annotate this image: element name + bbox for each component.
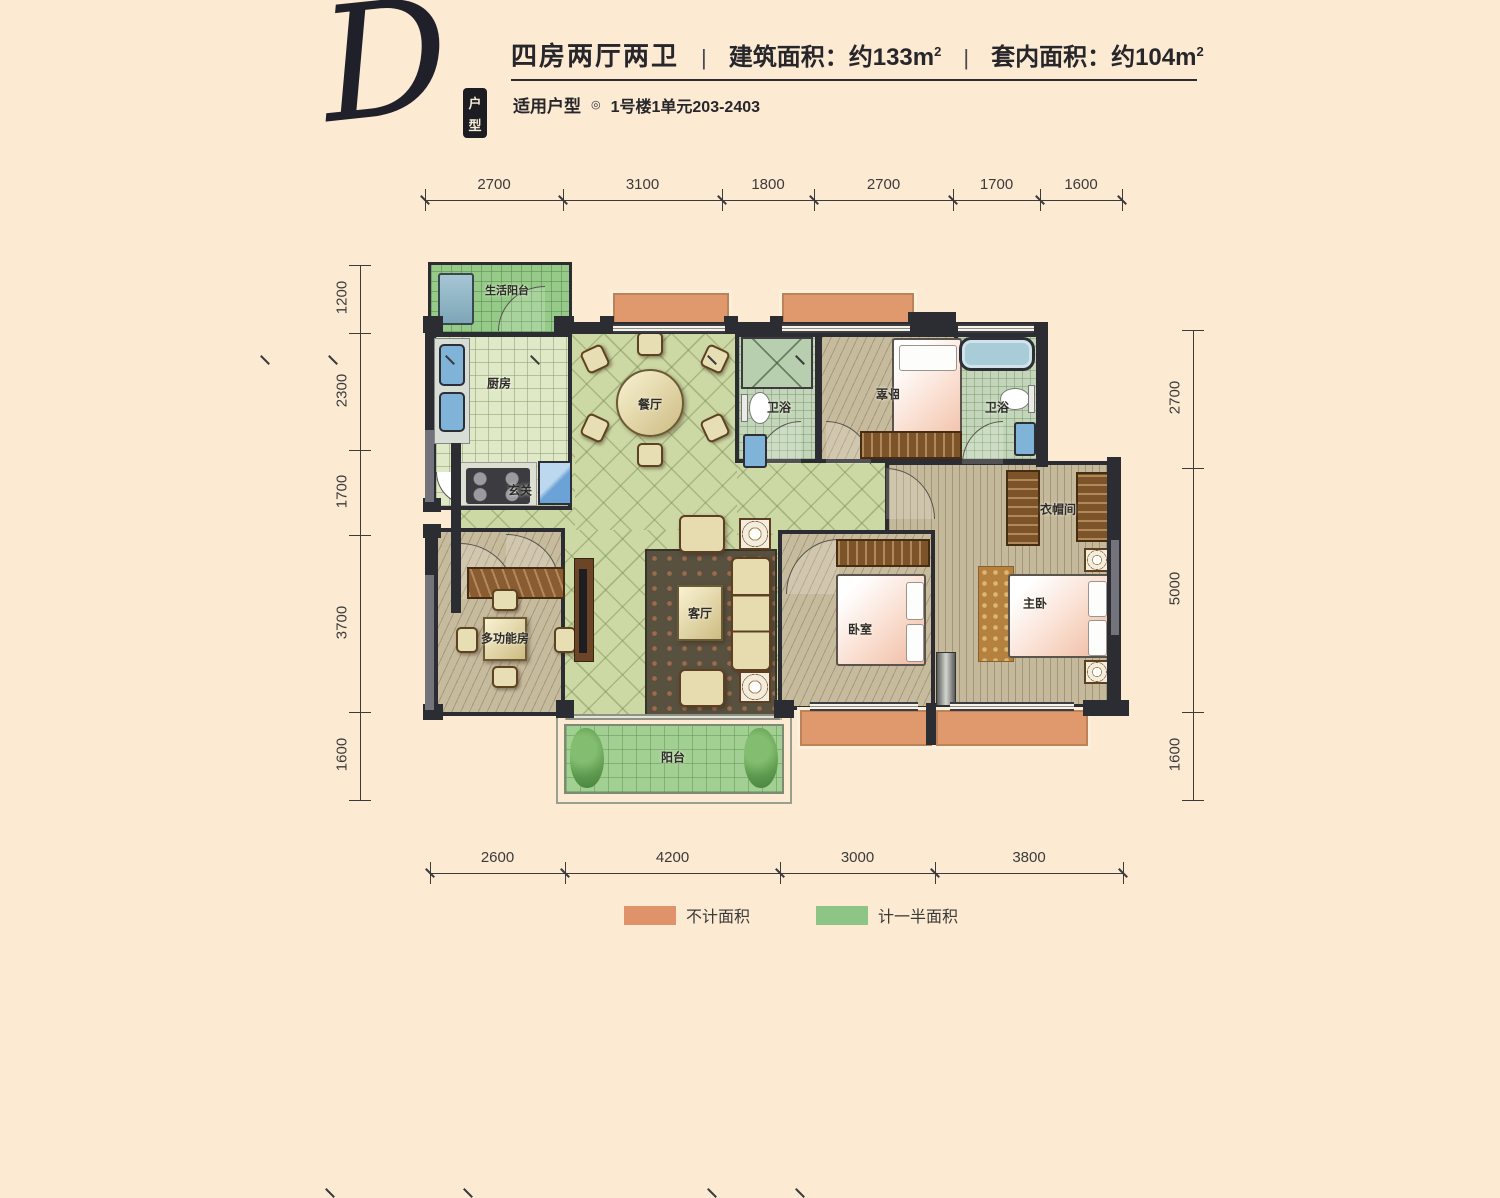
dimension-label: 4200 bbox=[633, 849, 713, 866]
room-label-bedroom-bottom: 卧室 bbox=[848, 621, 872, 638]
building-area: 建筑面积：约133m2 bbox=[729, 37, 942, 72]
dimension-label: 1600 bbox=[334, 715, 351, 795]
window bbox=[950, 702, 1074, 711]
tv-cabinet bbox=[574, 558, 594, 662]
plant bbox=[570, 728, 604, 788]
dimension-label: 2700 bbox=[844, 176, 924, 193]
window bbox=[958, 324, 1034, 333]
dressing-table bbox=[936, 652, 956, 706]
dimension-tick bbox=[349, 333, 371, 334]
wall bbox=[908, 312, 956, 334]
room-label-balcony: 阳台 bbox=[661, 749, 685, 766]
dimension-label: 2700 bbox=[1167, 358, 1184, 438]
room-label-service-balcony: 生活阳台 bbox=[485, 282, 529, 298]
dimension-label: 1200 bbox=[334, 258, 351, 338]
room-label-bath1: 卫浴 bbox=[767, 399, 791, 416]
kitchen-sink bbox=[439, 392, 465, 432]
dimension-label: 5000 bbox=[1167, 549, 1184, 629]
plant bbox=[744, 728, 778, 788]
room-label-hall: 玄关 bbox=[508, 482, 532, 499]
dimension-tick bbox=[349, 450, 371, 451]
window bbox=[1111, 540, 1119, 635]
tv bbox=[579, 569, 587, 653]
window bbox=[613, 324, 725, 333]
dimension-label: 1700 bbox=[334, 451, 351, 531]
room-label-kitchen: 厨房 bbox=[487, 375, 511, 392]
dimension-label: 1700 bbox=[957, 176, 1037, 193]
bay-window-bottom-2 bbox=[936, 710, 1088, 746]
legend: 不计面积 计一半面积 bbox=[624, 903, 1024, 927]
dimension-line bbox=[360, 265, 361, 800]
wall bbox=[600, 316, 614, 334]
window bbox=[425, 575, 434, 710]
subtitle-value: 1号楼1单元203-2403 bbox=[611, 93, 760, 117]
dimension-tick bbox=[1182, 330, 1204, 331]
wall bbox=[1036, 322, 1048, 467]
dimension-tick bbox=[349, 712, 371, 713]
header-divider bbox=[511, 79, 1197, 81]
dimension-tick-slash bbox=[795, 1188, 805, 1198]
plan-type-letter: D bbox=[314, 0, 457, 146]
chair bbox=[492, 666, 518, 688]
wall bbox=[724, 316, 738, 334]
dimension-label: 3700 bbox=[334, 582, 351, 662]
dining-chair bbox=[637, 332, 663, 356]
master-bed bbox=[1008, 574, 1110, 658]
wall bbox=[926, 703, 936, 745]
bullet-icon: ◎ bbox=[591, 98, 601, 111]
chair bbox=[456, 627, 478, 653]
dimension-tick-slash bbox=[463, 1188, 473, 1198]
room-label-closet: 衣帽间 bbox=[1040, 501, 1076, 518]
room-label-bath2: 卫浴 bbox=[985, 399, 1009, 416]
dimension-line bbox=[1193, 330, 1194, 800]
wardrobe bbox=[860, 431, 962, 459]
side-table bbox=[739, 671, 771, 703]
inner-area: 套内面积：约104m2 bbox=[991, 37, 1204, 72]
dimension-label: 2700 bbox=[454, 176, 534, 193]
washing-machine bbox=[438, 273, 474, 325]
title-separator: | bbox=[963, 45, 969, 71]
armchair bbox=[679, 669, 725, 707]
kitchen-sink bbox=[439, 344, 465, 386]
wall bbox=[554, 316, 574, 333]
inner-area-sup: 2 bbox=[1196, 44, 1203, 59]
bay-window-bottom-1 bbox=[800, 710, 932, 746]
room-label-master: 主卧 bbox=[1023, 595, 1047, 612]
dimension-label: 2300 bbox=[334, 350, 351, 430]
bathroom-sink bbox=[1014, 422, 1036, 456]
legend-label-half-area: 计一半面积 bbox=[878, 903, 958, 927]
wall bbox=[556, 700, 574, 718]
building-area-sup: 2 bbox=[934, 44, 941, 59]
toilet-tank bbox=[1028, 385, 1035, 413]
huxing-seal: 户型 bbox=[463, 88, 487, 138]
window bbox=[425, 430, 434, 502]
armchair bbox=[679, 515, 725, 553]
dimension-label: 1600 bbox=[1041, 176, 1121, 193]
dimension-line bbox=[430, 873, 1123, 874]
page-title: 四房两厅两卫 bbox=[511, 36, 679, 73]
dimension-tick-slash bbox=[707, 1188, 717, 1198]
sofa bbox=[731, 557, 771, 671]
wardrobe bbox=[836, 539, 930, 567]
room-label-dining: 餐厅 bbox=[638, 396, 662, 413]
window bbox=[782, 324, 910, 333]
bathroom-sink bbox=[743, 434, 767, 468]
dimension-line bbox=[425, 200, 1122, 201]
dimension-tick-slash bbox=[325, 1188, 335, 1198]
side-table bbox=[739, 518, 771, 550]
dimension-label: 2600 bbox=[458, 849, 538, 866]
chair bbox=[554, 627, 576, 653]
balcony-sliding-door bbox=[566, 714, 780, 720]
dining-chair bbox=[637, 443, 663, 467]
legend-label-no-area: 不计面积 bbox=[686, 903, 750, 927]
chair bbox=[492, 589, 518, 611]
legend-swatch-orange bbox=[624, 906, 676, 925]
dimension-tick bbox=[1182, 468, 1204, 469]
subtitle-row: 适用户型 ◎ 1号楼1单元203-2403 bbox=[513, 92, 760, 117]
closet-wardrobe bbox=[1006, 470, 1040, 546]
room-label-bedroom-top: 卧室 bbox=[876, 386, 900, 403]
dimension-tick bbox=[1182, 800, 1204, 801]
room-label-multi: 多功能房 bbox=[481, 630, 529, 647]
title-separator: | bbox=[701, 45, 707, 71]
dimension-label: 3800 bbox=[989, 849, 1069, 866]
dimension-label: 1600 bbox=[1167, 715, 1184, 795]
wall bbox=[451, 443, 461, 613]
dimension-label: 3100 bbox=[603, 176, 683, 193]
fridge bbox=[538, 461, 572, 505]
bathtub bbox=[959, 337, 1035, 371]
dimension-tick bbox=[349, 265, 371, 266]
closet-wardrobe bbox=[1076, 472, 1110, 542]
toilet-tank bbox=[741, 394, 748, 422]
wall bbox=[1083, 700, 1129, 716]
title-row: 四房两厅两卫 | 建筑面积：约133m2 | 套内面积：约104m2 bbox=[511, 36, 1204, 73]
room-label-living: 客厅 bbox=[688, 605, 712, 622]
dimension-tick-slash bbox=[260, 355, 270, 365]
dimension-label: 1800 bbox=[728, 176, 808, 193]
window bbox=[810, 702, 918, 711]
dimension-label: 3000 bbox=[818, 849, 898, 866]
dimension-tick bbox=[1182, 712, 1204, 713]
dimension-tick bbox=[349, 535, 371, 536]
wall bbox=[774, 700, 794, 718]
legend-swatch-green bbox=[816, 906, 868, 925]
dimension-tick bbox=[349, 800, 371, 801]
subtitle-label: 适用户型 bbox=[513, 92, 581, 117]
